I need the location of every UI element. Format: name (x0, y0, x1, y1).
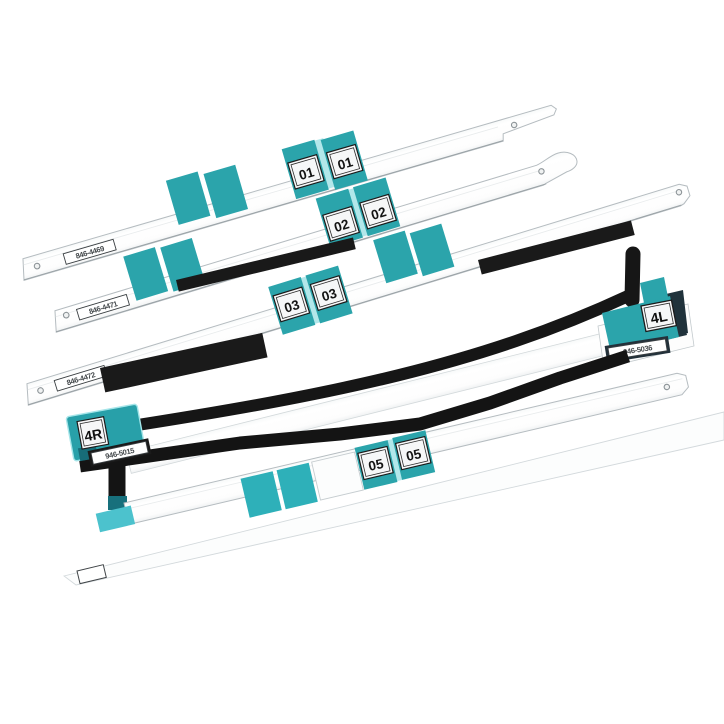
svg-text:4R: 4R (83, 425, 104, 444)
svg-text:4L: 4L (649, 309, 669, 328)
